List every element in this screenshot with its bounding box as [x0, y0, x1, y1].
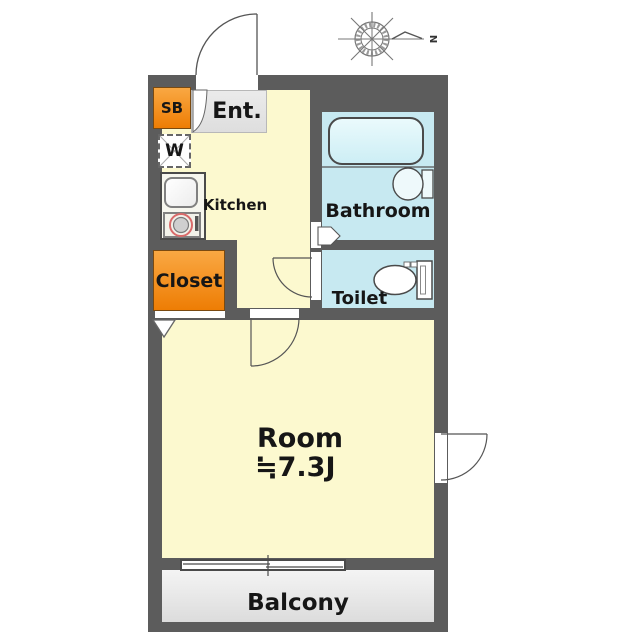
compass-icon: [338, 12, 424, 66]
shoe-box-label: SB: [153, 87, 191, 129]
closet-label: Closet: [153, 250, 225, 311]
wall-closet-right: [225, 240, 237, 320]
balcony-label: Balcony: [162, 588, 434, 618]
toilet-label: Toilet: [322, 288, 397, 308]
washer-label: W: [158, 134, 191, 168]
room-door-opening: [250, 309, 299, 318]
north-arrow: [392, 32, 422, 39]
wall-closet-top: [148, 240, 237, 250]
wall-top-right-block: [310, 75, 448, 112]
floor-plan: SB Ent. W Kitchen Bathroom Toilet Closet…: [0, 0, 640, 640]
bathroom-door-opening: [311, 222, 321, 248]
kitchen-stove: [163, 212, 201, 238]
room-size-label: ≒7.3J: [255, 452, 385, 482]
bathtub: [328, 117, 424, 165]
kitchen-label: Kitchen: [203, 196, 267, 214]
bathroom-label: Bathroom: [322, 200, 434, 222]
room-east-door-opening: [435, 433, 447, 483]
north-label: N: [425, 31, 441, 47]
wall-toilet-bottom: [310, 308, 448, 320]
wall-right: [434, 75, 448, 632]
toilet-door-opening: [311, 252, 321, 300]
closet-opening: [155, 310, 225, 318]
entrance-door-opening: [196, 75, 258, 90]
entrance-door-arc: [196, 14, 257, 75]
wall-bottom: [148, 622, 448, 632]
entrance-label: Ent.: [208, 94, 266, 128]
wall-bath-toilet: [310, 240, 448, 250]
balcony-sliding-window: [180, 559, 346, 571]
kitchen-sink: [164, 177, 198, 208]
room-label: Room: [257, 423, 387, 453]
